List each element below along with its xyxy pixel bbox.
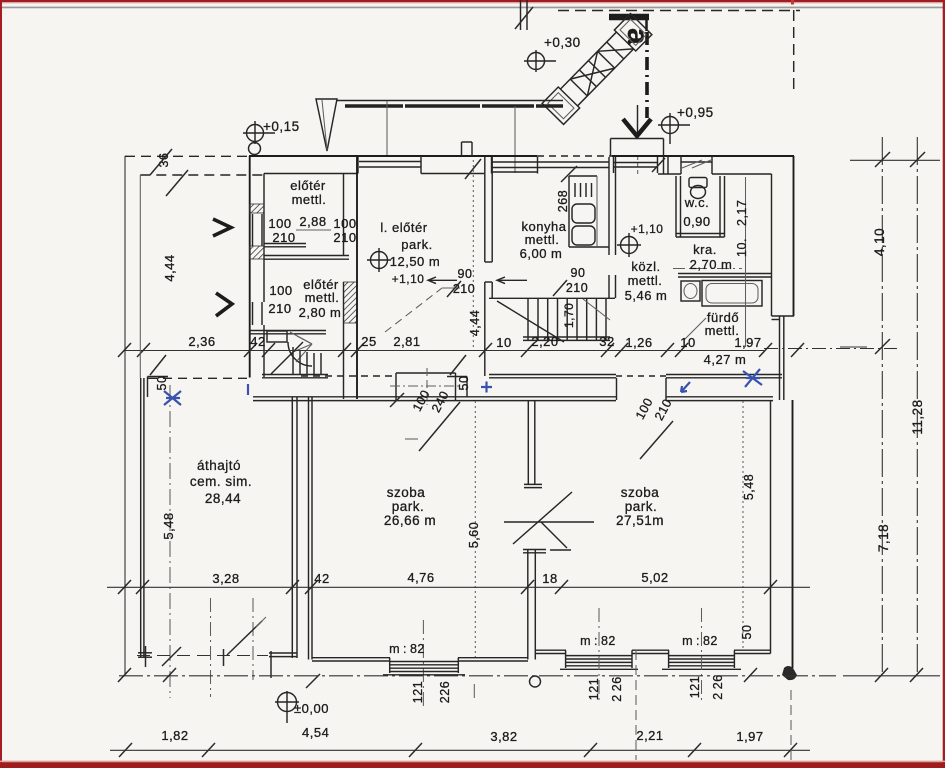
svg-text:5,46 m: 5,46 m <box>625 288 668 303</box>
svg-text:cem. sim.: cem. sim. <box>190 474 252 489</box>
svg-text:4,76: 4,76 <box>407 570 434 585</box>
svg-text:szoba: szoba <box>621 485 660 500</box>
svg-text:4,10: 4,10 <box>872 228 887 256</box>
svg-text:50: 50 <box>740 625 754 640</box>
svg-text:+0,15: +0,15 <box>263 119 300 134</box>
svg-text:11,28: 11,28 <box>910 399 925 434</box>
svg-text:1,70: 1,70 <box>562 303 576 328</box>
svg-text:0,90: 0,90 <box>683 214 710 229</box>
svg-text:2,88: 2,88 <box>299 214 326 229</box>
svg-text:±0,00: ±0,00 <box>294 701 329 716</box>
svg-text:3,82: 3,82 <box>490 729 517 744</box>
svg-text:+1,10: +1,10 <box>392 272 425 286</box>
svg-text:4,54: 4,54 <box>302 725 329 740</box>
svg-text:mettl.: mettl. <box>292 192 327 207</box>
svg-text:mettl.: mettl. <box>305 290 340 305</box>
svg-text:27,51m: 27,51m <box>616 513 664 528</box>
svg-text:+0,95: +0,95 <box>677 105 714 120</box>
svg-text:28,44: 28,44 <box>205 491 241 506</box>
svg-text:10.: 10. <box>735 238 749 257</box>
svg-text:park.: park. <box>625 499 658 514</box>
svg-text:210: 210 <box>333 230 356 245</box>
svg-text:4,44: 4,44 <box>468 310 482 336</box>
svg-text:park.: park. <box>401 237 432 252</box>
svg-text:áthajtó: áthajtó <box>197 458 241 473</box>
svg-text:2 26: 2 26 <box>610 676 624 701</box>
svg-text:90: 90 <box>571 266 586 280</box>
svg-text:42: 42 <box>250 334 265 349</box>
svg-text:+0,30: +0,30 <box>544 35 581 50</box>
svg-text:2,20: 2,20 <box>531 334 558 349</box>
svg-text:2,21: 2,21 <box>636 728 663 743</box>
svg-text:közl.: közl. <box>631 259 660 274</box>
svg-text:l. előtér: l. előtér <box>380 220 427 235</box>
svg-text:1,82: 1,82 <box>161 728 188 743</box>
svg-text:2 26: 2 26 <box>711 674 725 699</box>
svg-text:1,26: 1,26 <box>625 335 652 350</box>
svg-text:2,80 m: 2,80 m <box>299 305 342 320</box>
svg-text:1,97: 1,97 <box>736 729 763 744</box>
svg-text:park.: park. <box>392 499 425 514</box>
svg-text:3,28: 3,28 <box>212 571 239 586</box>
svg-text:121: 121 <box>411 681 425 703</box>
svg-text:210: 210 <box>268 301 291 316</box>
svg-text:18: 18 <box>542 571 557 586</box>
svg-text:10: 10 <box>496 335 511 350</box>
svg-text:10: 10 <box>680 335 695 350</box>
svg-text:m : 82: m : 82 <box>389 642 425 656</box>
svg-text:121: 121 <box>688 676 702 698</box>
svg-text:4,27 m: 4,27 m <box>704 352 747 367</box>
svg-text:210: 210 <box>453 282 475 296</box>
svg-text:100: 100 <box>268 216 291 231</box>
svg-text:m : 82: m : 82 <box>682 634 718 648</box>
svg-text:mettl.: mettl. <box>628 273 663 288</box>
svg-text:1,97: 1,97 <box>734 335 761 350</box>
svg-text:210: 210 <box>272 230 295 245</box>
svg-text:5,48: 5,48 <box>742 474 756 500</box>
svg-text:előtér: előtér <box>290 178 326 193</box>
svg-text:42: 42 <box>314 571 329 586</box>
svg-text:2,81: 2,81 <box>393 334 420 349</box>
svg-text:100: 100 <box>269 283 292 298</box>
svg-text:12,50 m: 12,50 m <box>390 254 440 269</box>
svg-text:5,60: 5,60 <box>467 522 481 548</box>
svg-text:m : 82: m : 82 <box>580 634 616 648</box>
svg-text:4,44: 4,44 <box>162 254 177 281</box>
svg-text:5,02: 5,02 <box>641 570 668 585</box>
svg-text:kra.: kra. <box>693 242 717 257</box>
svg-text:5,48: 5,48 <box>161 512 176 539</box>
svg-text:2,70 m: 2,70 m <box>690 257 733 272</box>
svg-text:w.c.: w.c. <box>684 195 709 210</box>
svg-text:26,66 m: 26,66 m <box>384 513 436 528</box>
svg-text:210: 210 <box>566 281 588 295</box>
svg-text:szoba: szoba <box>387 485 426 500</box>
svg-text:226: 226 <box>438 681 452 703</box>
svg-text:25: 25 <box>361 334 376 349</box>
svg-text:32: 32 <box>599 334 614 349</box>
svg-text:+1,10: +1,10 <box>631 222 664 236</box>
svg-text:100: 100 <box>333 216 356 231</box>
svg-text:90: 90 <box>458 267 473 281</box>
svg-text:50: 50 <box>155 376 169 391</box>
svg-text:7,18: 7,18 <box>876 524 891 552</box>
svg-text:50: 50 <box>457 376 471 391</box>
svg-text:2,17: 2,17 <box>735 200 749 226</box>
svg-text:6,00 m: 6,00 m <box>520 246 563 261</box>
svg-text:2,36: 2,36 <box>188 334 215 349</box>
svg-text:mettl.: mettl. <box>525 232 560 247</box>
svg-text:268: 268 <box>556 190 570 212</box>
